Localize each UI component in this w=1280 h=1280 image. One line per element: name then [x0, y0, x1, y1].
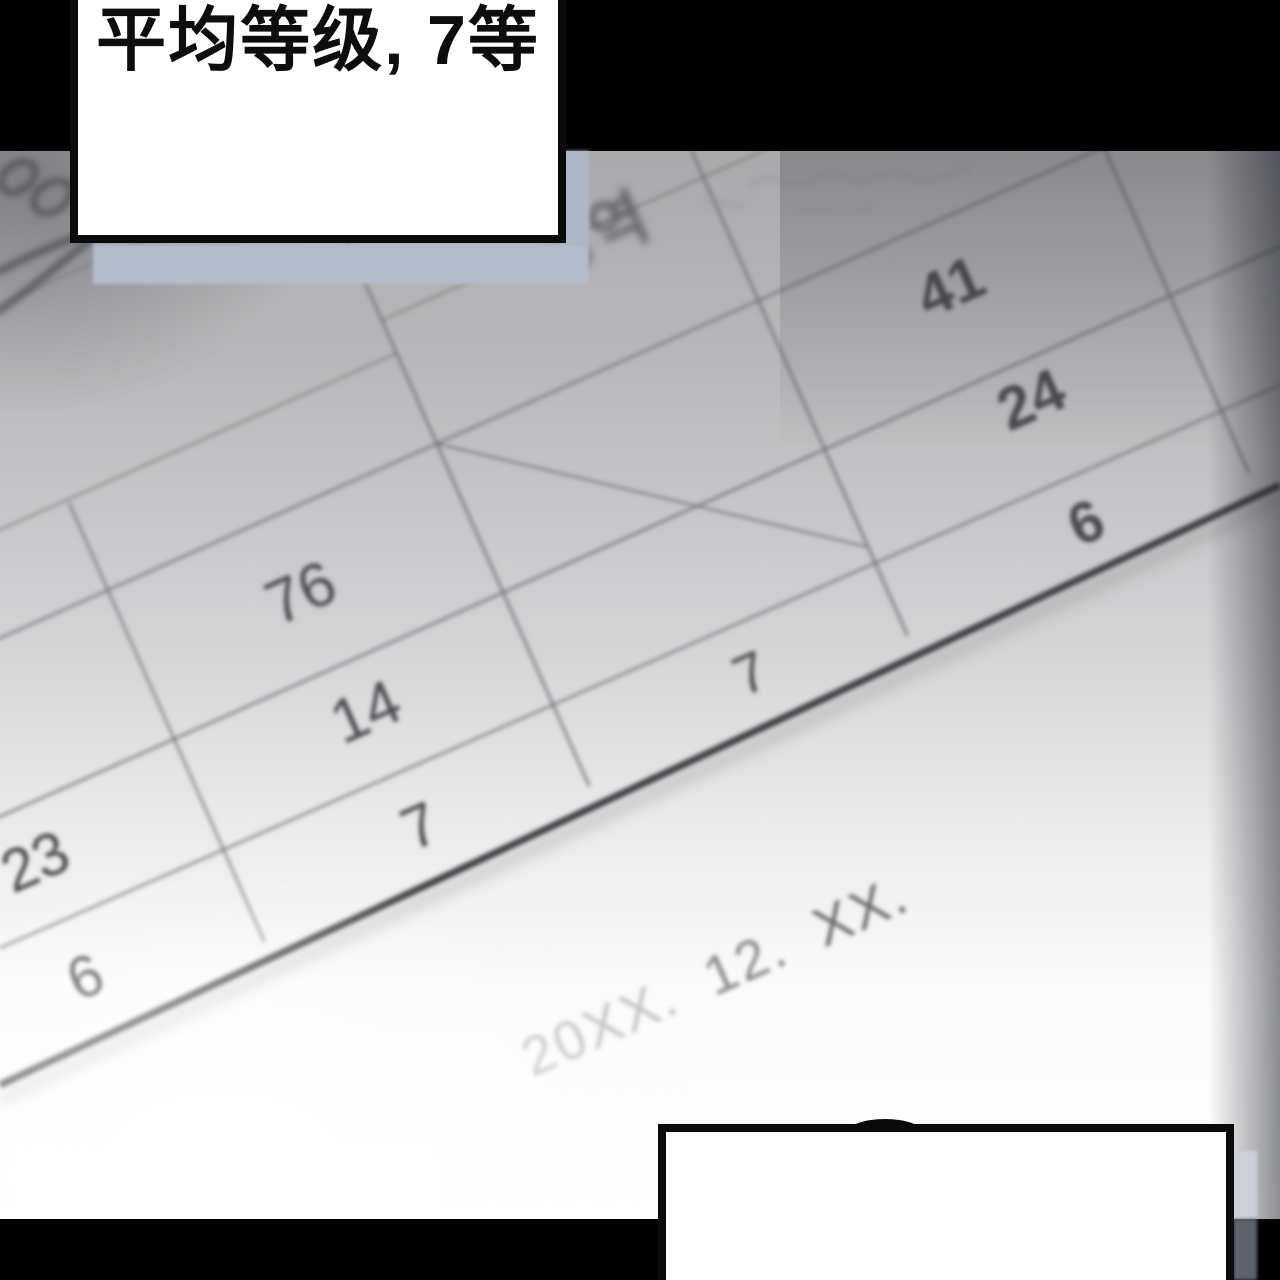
grade-table-grid: 41 24 6 76 14 7 7 23 6 역 20XX. [0, 151, 1280, 1219]
table-values: 41 24 6 76 14 7 7 23 6 [0, 231, 1134, 1020]
scribble-stroke [748, 169, 970, 187]
bubble-shadow-strip-dark [1233, 1219, 1257, 1280]
table-column-line [69, 503, 264, 942]
merged-cell-diagonal-line [437, 300, 868, 690]
date-day: XX. [804, 862, 918, 958]
date-text: 20XX. 12. XX. [512, 862, 918, 1088]
speech-text: 平均等级, 7等 [78, 4, 558, 78]
grade-table-svg: 41 24 6 76 14 7 7 23 6 역 20XX. [0, 151, 1280, 1219]
table-cell-7-center: 7 [723, 637, 777, 707]
table-row-line [0, 353, 397, 536]
speech-bubble-bottom [658, 1124, 1234, 1280]
table-cell-14: 14 [320, 667, 411, 758]
table-cell-7-left: 7 [391, 789, 449, 864]
speech-bubble-top: 平均等级, 7等 [70, 0, 566, 243]
header-scribble [705, 169, 970, 213]
table-row-line [0, 385, 1280, 948]
table-cell-24: 24 [987, 355, 1076, 444]
bubble-shadow-strip-light [1233, 1151, 1257, 1219]
scribble-stroke [705, 201, 745, 207]
table-cell-23: 23 [0, 817, 79, 905]
table-column-line [1045, 151, 1249, 473]
table-cell-6-right: 6 [1058, 487, 1114, 560]
table-column-line [622, 151, 908, 636]
date-month: 12. [694, 916, 797, 1007]
bubble-shadow-band-horizontal [93, 244, 589, 284]
manhwa-panel: 41 24 6 76 14 7 7 23 6 역 20XX. [0, 0, 1280, 1280]
date-year: 20XX. [512, 965, 688, 1089]
table-cell-6-left: 6 [57, 941, 113, 1014]
table-cell-41: 41 [906, 243, 994, 331]
scribble-stroke [790, 205, 874, 213]
table-cell-76: 76 [255, 548, 346, 639]
report-card-photo: 41 24 6 76 14 7 7 23 6 역 20XX. [0, 151, 1280, 1219]
bubble-shadow-band-vertical [562, 151, 589, 245]
